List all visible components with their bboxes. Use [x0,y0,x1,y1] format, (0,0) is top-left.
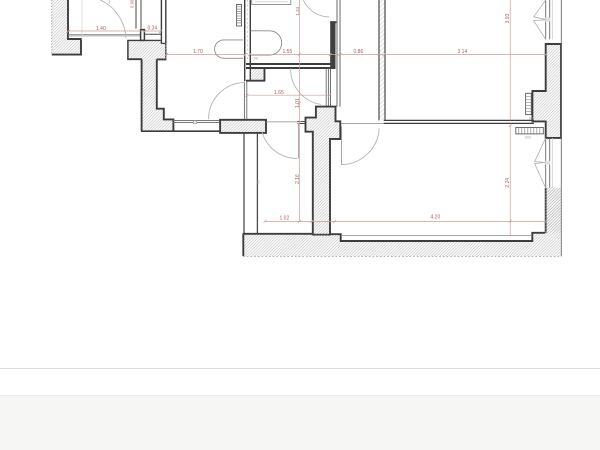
svg-text:0.34: 0.34 [148,26,158,32]
svg-text:1.34: 1.34 [295,6,300,15]
svg-text:1.02: 1.02 [280,216,290,222]
svg-text:2.16: 2.16 [295,174,301,184]
svg-text:1.65: 1.65 [274,90,284,96]
svg-text:1.70: 1.70 [193,49,203,55]
svg-text:3.93: 3.93 [505,13,511,23]
svg-text:600: 600 [525,136,531,140]
svg-text:1.01: 1.01 [295,98,301,108]
svg-text:1.55: 1.55 [283,49,293,55]
svg-text:2.24: 2.24 [505,178,511,188]
svg-text:0.90: 0.90 [130,0,135,8]
svg-text:90: 90 [254,56,259,61]
svg-text:1.40: 1.40 [96,26,106,32]
svg-text:4.20: 4.20 [431,215,441,221]
svg-text:0.86: 0.86 [354,49,364,55]
svg-text:3.14: 3.14 [458,49,468,55]
svg-text:60: 60 [529,117,533,121]
svg-text:90: 90 [257,180,261,184]
